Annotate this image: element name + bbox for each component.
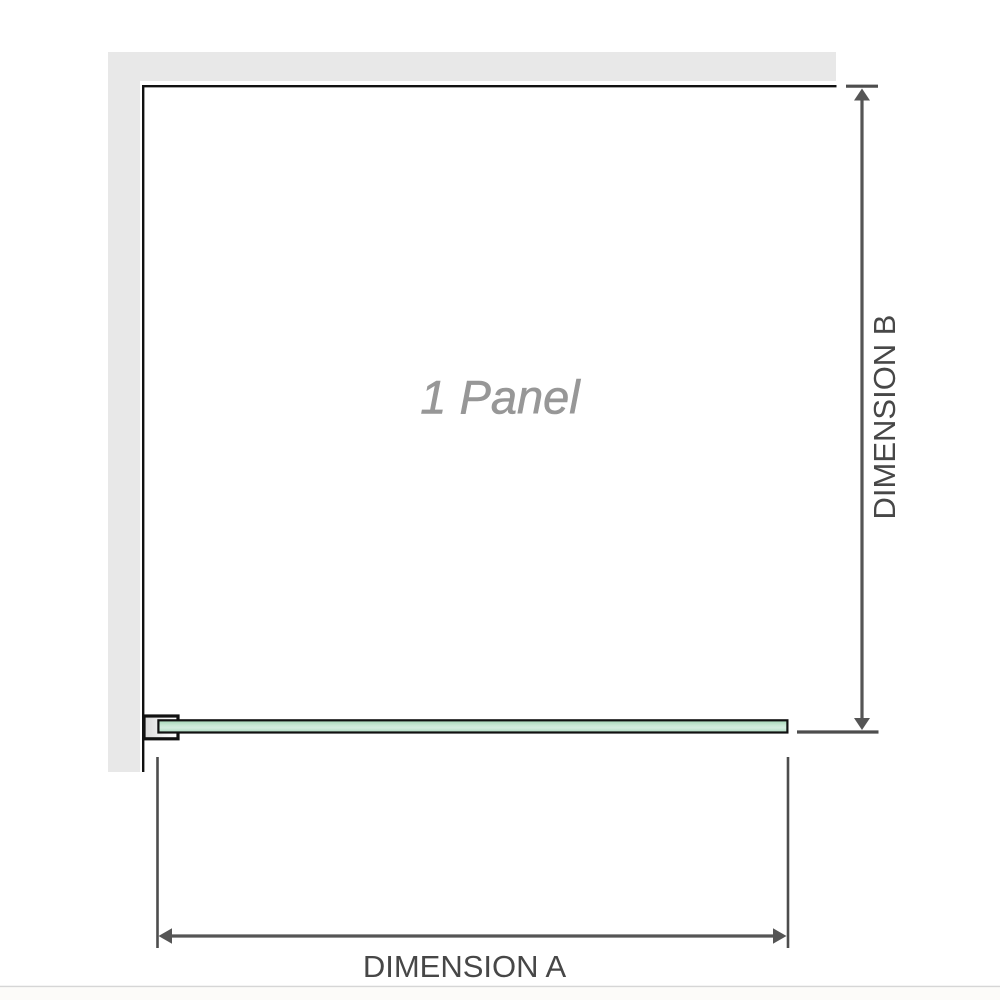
svg-text:1 Panel: 1 Panel	[420, 371, 581, 424]
svg-text:DIMENSION B: DIMENSION B	[867, 315, 902, 520]
svg-text:DIMENSION A: DIMENSION A	[363, 949, 567, 984]
